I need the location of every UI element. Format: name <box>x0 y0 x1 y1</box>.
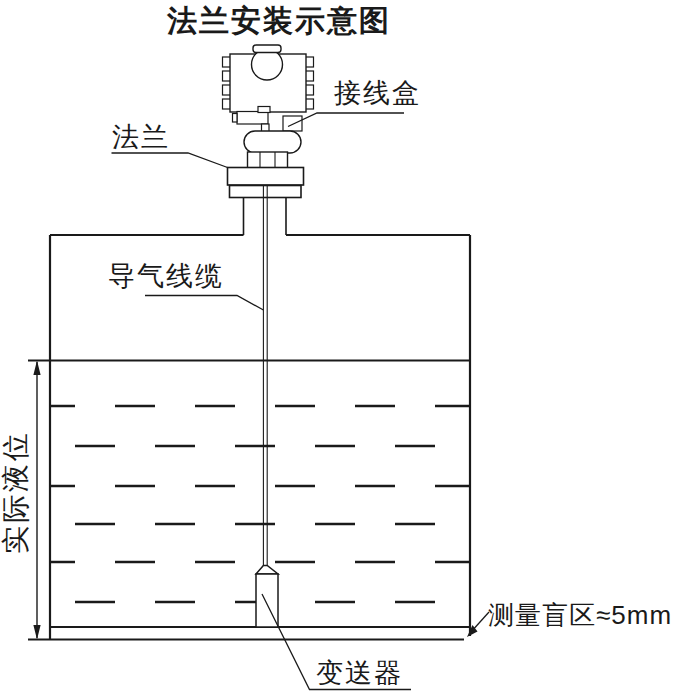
conduit-raised-block <box>258 107 270 113</box>
label-air-cable: 导气线缆 <box>108 262 224 290</box>
label-junction-box: 接线盒 <box>334 79 421 107</box>
dimension-arrow-down <box>33 625 40 640</box>
leader-flange <box>112 153 228 168</box>
swivel-ball <box>244 131 301 153</box>
transmitter-head <box>223 45 314 168</box>
housing-step-block <box>283 116 302 131</box>
page-title: 法兰安装示意图 <box>148 5 410 37</box>
label-actual-level: 实际液位 <box>1 422 33 562</box>
leader-air-cable <box>145 296 263 311</box>
probe-weight <box>256 566 278 628</box>
tank-outline <box>28 235 470 640</box>
flange-installation-diagram: 法兰安装示意图 接线盒 法兰 导气线缆 实际液位 变送器 测量盲区≈5mm <box>0 0 700 700</box>
level-dimension <box>33 361 40 640</box>
label-flange: 法兰 <box>112 123 170 151</box>
flange-plate <box>228 168 304 186</box>
conduit-block <box>237 112 268 125</box>
dimension-arrow-up <box>33 361 40 376</box>
housing-cap-band <box>253 45 281 53</box>
hex-nut <box>248 152 288 168</box>
label-transmitter: 变送器 <box>316 659 403 687</box>
housing-cap <box>252 49 283 80</box>
conduit-nub <box>233 114 238 123</box>
leader-junction-box <box>288 113 404 127</box>
label-blind-zone: 测量盲区≈5mm <box>488 602 672 629</box>
cable-line <box>263 186 267 566</box>
flange-lower-plate <box>230 186 302 198</box>
flange-assembly <box>228 168 304 236</box>
